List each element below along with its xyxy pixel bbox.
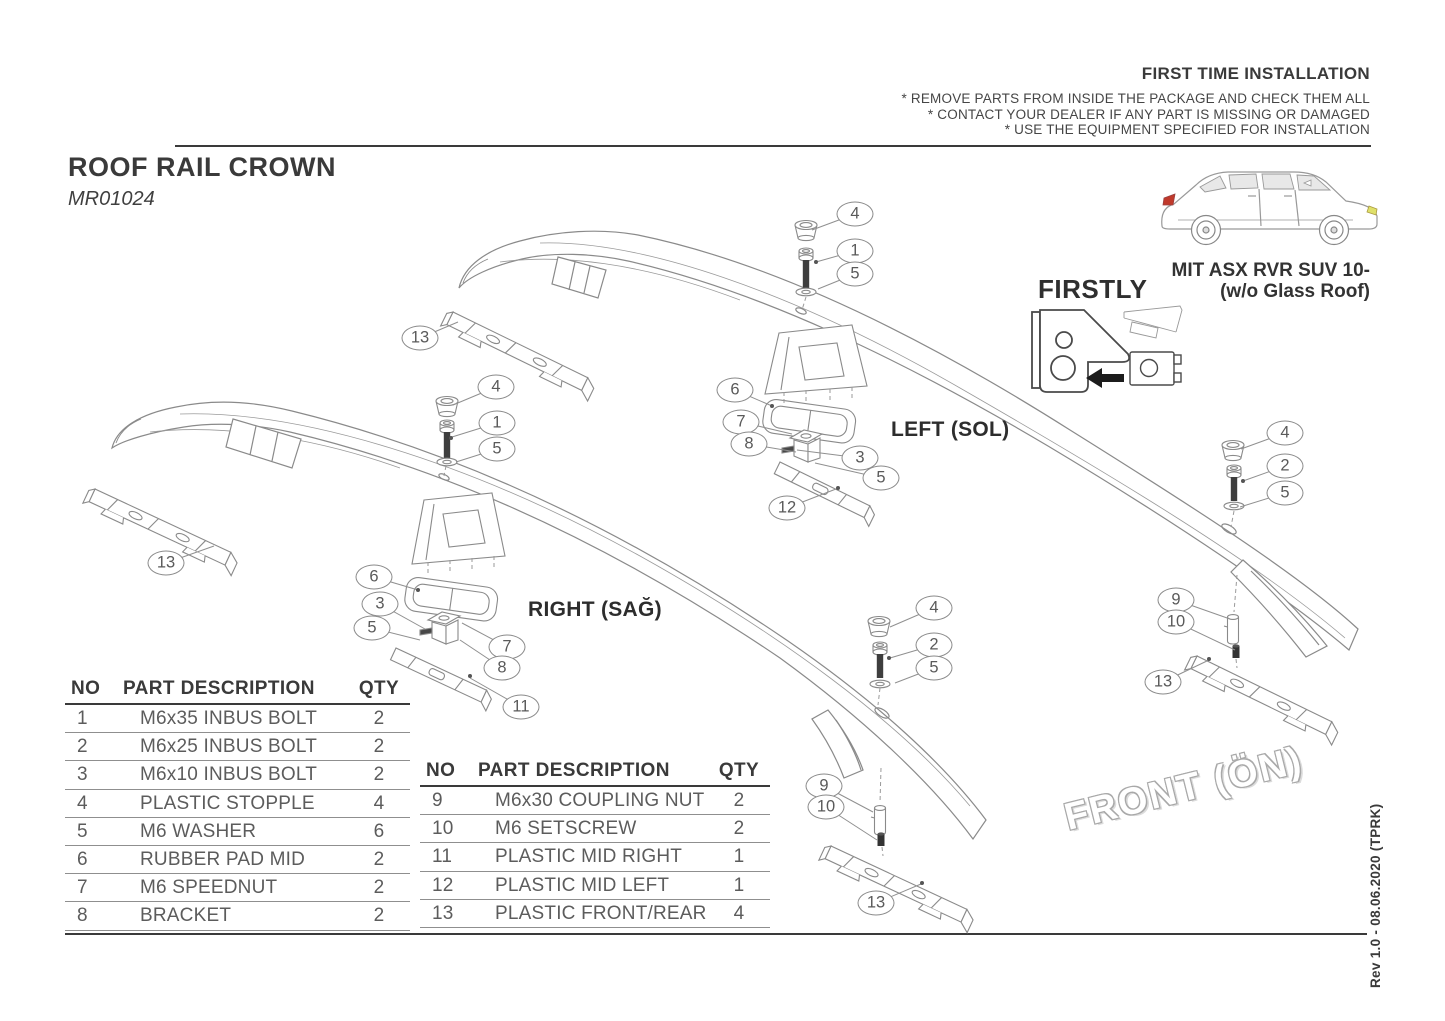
cell-desc: PLASTIC MID RIGHT <box>478 843 708 870</box>
cell-qty: 1 <box>708 843 770 870</box>
cell-desc: M6x25 INBUS BOLT <box>123 733 348 760</box>
callout-8: 8 <box>484 656 521 681</box>
cell-desc: M6 SPEEDNUT <box>123 874 348 901</box>
cell-desc: M6 SETSCREW <box>478 815 708 842</box>
parts-table-row: 12PLASTIC MID LEFT1 <box>420 872 770 900</box>
cell-no: 1 <box>65 705 123 732</box>
header-no: NO <box>420 760 478 782</box>
cell-no: 6 <box>65 846 123 873</box>
instruction-sheet: FIRST TIME INSTALLATION * REMOVE PARTS F… <box>0 0 1445 1021</box>
cell-desc: M6 WASHER <box>123 818 348 845</box>
cell-desc: PLASTIC FRONT/REAR <box>478 900 708 927</box>
parts-table-row: 1M6x35 INBUS BOLT2 <box>65 705 410 733</box>
plastic-front-rear-strip <box>439 310 597 401</box>
cell-qty: 6 <box>348 818 410 845</box>
header-part-description: PART DESCRIPTION <box>123 678 348 700</box>
cell-no: 7 <box>65 874 123 901</box>
cell-desc: BRACKET <box>123 902 348 929</box>
plastic-front-rear-strip <box>818 844 976 933</box>
plastic-front-rear-strip <box>1183 654 1341 745</box>
header-qty: QTY <box>348 678 410 700</box>
callout-12: 12 <box>769 496 806 521</box>
cell-desc: M6x35 INBUS BOLT <box>123 705 348 732</box>
coupling-nut <box>871 806 886 835</box>
header-part-description: PART DESCRIPTION <box>478 760 708 782</box>
callout-4: 4 <box>478 375 515 400</box>
cell-no: 11 <box>420 843 478 870</box>
cell-qty: 2 <box>348 733 410 760</box>
parts-table-row: 9M6x30 COUPLING NUT2 <box>420 787 770 815</box>
cell-no: 8 <box>65 902 123 929</box>
label-right-sag: RIGHT (SAĞ) <box>528 598 662 622</box>
callout-1: 1 <box>479 411 516 436</box>
cell-no: 2 <box>65 733 123 760</box>
callout-5: 5 <box>863 466 900 491</box>
cell-qty: 2 <box>348 705 410 732</box>
callout-5: 5 <box>837 262 874 287</box>
parts-table-row: 7M6 SPEEDNUT2 <box>65 874 410 902</box>
parts-table-row: 8BRACKET2 <box>65 902 410 930</box>
callout-3: 3 <box>362 592 399 617</box>
callout-10: 10 <box>1158 610 1195 635</box>
cell-no: 4 <box>65 790 123 817</box>
cell-desc: PLASTIC MID LEFT <box>478 872 708 899</box>
cell-no: 3 <box>65 761 123 788</box>
cell-qty: 2 <box>708 787 770 814</box>
parts-table-row: 5M6 WASHER6 <box>65 818 410 846</box>
callout-8: 8 <box>731 432 768 457</box>
cell-qty: 2 <box>348 902 410 929</box>
parts-table-row: 2M6x25 INBUS BOLT2 <box>65 733 410 761</box>
parts-table-row: 6RUBBER PAD MID2 <box>65 846 410 874</box>
callout-4: 4 <box>837 202 874 227</box>
callout-10: 10 <box>808 795 845 820</box>
callout-2: 2 <box>1267 454 1304 479</box>
cell-qty: 2 <box>348 846 410 873</box>
cell-qty: 2 <box>348 874 410 901</box>
cell-qty: 2 <box>348 761 410 788</box>
parts-table-row: 10M6 SETSCREW2 <box>420 815 770 843</box>
label-left-sol: LEFT (SOL) <box>891 418 1009 442</box>
cell-desc: M6x10 INBUS BOLT <box>123 761 348 788</box>
callout-13: 13 <box>148 551 185 576</box>
cell-no: 13 <box>420 900 478 927</box>
callout-5: 5 <box>916 656 953 681</box>
header-no: NO <box>65 678 123 700</box>
cell-qty: 2 <box>708 815 770 842</box>
parts-table-row: 4PLASTIC STOPPLE4 <box>65 790 410 818</box>
callout-13: 13 <box>858 891 895 916</box>
callout-13: 13 <box>1145 670 1182 695</box>
speednut-bracket-assembly <box>420 612 460 644</box>
callout-2: 2 <box>916 633 953 658</box>
callout-13: 13 <box>402 326 439 351</box>
setscrew <box>878 832 885 846</box>
parts-table-row: 11PLASTIC MID RIGHT1 <box>420 843 770 871</box>
cell-no: 9 <box>420 787 478 814</box>
cell-no: 12 <box>420 872 478 899</box>
callout-4: 4 <box>916 596 953 621</box>
callout-5: 5 <box>479 437 516 462</box>
callout-7: 7 <box>723 410 760 435</box>
cell-no: 5 <box>65 818 123 845</box>
parts-table-1-body: 1M6x35 INBUS BOLT22M6x25 INBUS BOLT23M6x… <box>65 705 410 931</box>
revision-text: Rev 1.0 - 08.06.2020 (TPRK) <box>1368 804 1383 988</box>
setscrew <box>1233 644 1240 658</box>
parts-table-1: NO PART DESCRIPTION QTY 1M6x35 INBUS BOL… <box>65 678 410 931</box>
parts-table-2-header: NO PART DESCRIPTION QTY <box>420 760 770 787</box>
callout-5: 5 <box>1267 481 1304 506</box>
cell-desc: RUBBER PAD MID <box>123 846 348 873</box>
parts-table-row: 13PLASTIC FRONT/REAR4 <box>420 900 770 928</box>
top-rail-front-foot <box>552 257 606 298</box>
header-qty: QTY <box>708 760 770 782</box>
callout-5: 5 <box>354 616 391 641</box>
parts-table-row: 3M6x10 INBUS BOLT2 <box>65 761 410 789</box>
cell-qty: 4 <box>708 900 770 927</box>
callout-11: 11 <box>503 695 540 720</box>
callout-6: 6 <box>356 565 393 590</box>
parts-table-1-header: NO PART DESCRIPTION QTY <box>65 678 410 705</box>
callout-4: 4 <box>1267 421 1304 446</box>
cell-qty: 4 <box>348 790 410 817</box>
parts-table-2: NO PART DESCRIPTION QTY 9M6x30 COUPLING … <box>420 760 770 928</box>
cell-no: 10 <box>420 815 478 842</box>
parts-table-2-body: 9M6x30 COUPLING NUT210M6 SETSCREW211PLAS… <box>420 787 770 928</box>
bottom-rail-rear-foot <box>812 710 863 778</box>
callout-6: 6 <box>717 378 754 403</box>
cell-desc: M6x30 COUPLING NUT <box>478 787 708 814</box>
coupling-nut <box>1224 615 1239 644</box>
cell-desc: PLASTIC STOPPLE <box>123 790 348 817</box>
callout-1: 1 <box>837 239 874 264</box>
cell-qty: 1 <box>708 872 770 899</box>
